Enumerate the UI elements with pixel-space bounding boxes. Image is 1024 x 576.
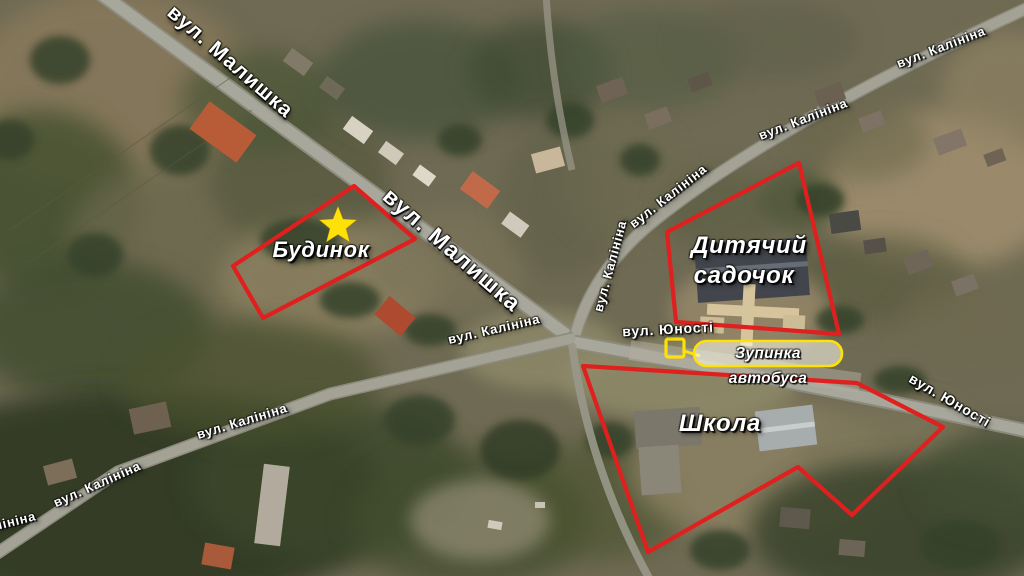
outline-shkola <box>583 366 943 552</box>
annotation-overlay <box>0 0 1024 576</box>
satellite-map[interactable]: вул. Малишкавул. Малишкавул. Калінінавул… <box>0 0 1024 576</box>
star-marker[interactable] <box>319 206 357 242</box>
outline-budynok <box>233 186 415 318</box>
outline-sadochok <box>667 163 839 334</box>
bus-stop-marker-square[interactable] <box>666 339 684 357</box>
bus-stop-label: Зупинка автобуса <box>694 341 842 366</box>
